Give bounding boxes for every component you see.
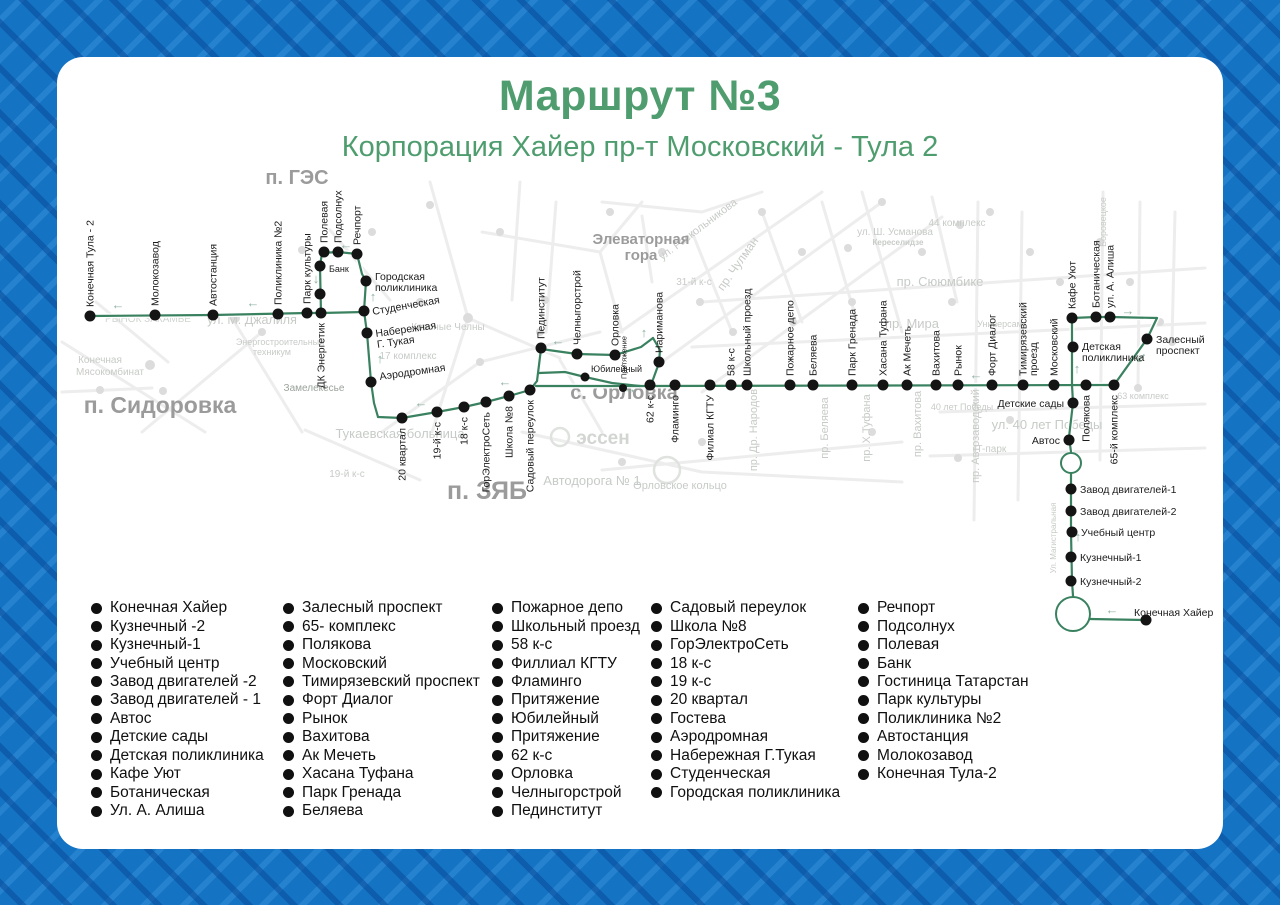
stop-bullet-icon — [283, 676, 294, 687]
legend-item: Аэродромная — [651, 728, 840, 746]
legend-item: Учебный центр — [91, 654, 264, 672]
stop-bullet-icon — [492, 713, 503, 724]
legend-item: Поликлиника №2 — [858, 710, 1029, 728]
legend-item-label: 58 к-с — [511, 636, 552, 654]
stop-bullet-icon — [858, 750, 869, 761]
legend-item-label: Кузнечный-1 — [110, 636, 201, 654]
legend-item: Полевая — [858, 636, 1029, 654]
legend-item-label: Парк Гренада — [302, 784, 401, 802]
legend-item: Фламинго — [492, 673, 640, 691]
stop-bullet-icon — [283, 640, 294, 651]
stop-bullet-icon — [91, 640, 102, 651]
stop-bullet-icon — [91, 713, 102, 724]
stop-bullet-icon — [492, 750, 503, 761]
legend-column: Садовый переулокШкола №8ГорЭлектроСеть18… — [651, 599, 840, 802]
legend-item: Завод двигателей - 1 — [91, 691, 264, 709]
legend-item-label: Школьный проезд — [511, 618, 640, 636]
stop-bullet-icon — [651, 713, 662, 724]
legend-item: Орловка — [492, 765, 640, 783]
stop-bullet-icon — [283, 658, 294, 669]
legend-item: Рынок — [283, 710, 480, 728]
legend-item-label: 20 квартал — [670, 691, 748, 709]
stop-bullet-icon — [91, 603, 102, 614]
stop-bullet-icon — [91, 732, 102, 743]
stop-bullet-icon — [91, 676, 102, 687]
legend-item-label: Детские сады — [110, 728, 208, 746]
stop-bullet-icon — [283, 787, 294, 798]
legend-item: Залесный проспект — [283, 599, 480, 617]
legend-item-label: Молокозавод — [877, 747, 973, 765]
stops-legend: Конечная ХайерКузнечный -2Кузнечный-1Уче… — [0, 0, 1280, 905]
legend-item-label: Вахитова — [302, 728, 370, 746]
legend-item-label: Рынок — [302, 710, 347, 728]
legend-item-label: Фламинго — [511, 673, 582, 691]
stop-bullet-icon — [492, 732, 503, 743]
legend-item: Садовый переулок — [651, 599, 840, 617]
legend-item-label: Ботаническая — [110, 784, 210, 802]
stop-bullet-icon — [858, 676, 869, 687]
legend-item: Автос — [91, 710, 264, 728]
legend-item: 19 к-с — [651, 673, 840, 691]
stop-bullet-icon — [858, 603, 869, 614]
legend-item: Банк — [858, 654, 1029, 672]
stop-bullet-icon — [492, 603, 503, 614]
stop-bullet-icon — [651, 732, 662, 743]
legend-item-label: Московский — [302, 655, 387, 673]
legend-item: Школьный проезд — [492, 617, 640, 635]
legend-item-label: Поликлиника №2 — [877, 710, 1001, 728]
legend-column: Залесный проспект65- комплексПоляковаМос… — [283, 599, 480, 820]
legend-item-label: Филлиал КГТУ — [511, 655, 617, 673]
legend-item-label: Притяжение — [511, 728, 600, 746]
legend-item-label: Парк культуры — [877, 691, 981, 709]
legend-item-label: Учебный центр — [110, 655, 220, 673]
legend-item-label: 65- комплекс — [302, 618, 396, 636]
legend-item: Беляева — [283, 802, 480, 820]
legend-item: Юбилейный — [492, 710, 640, 728]
legend-item: Челныгорстрой — [492, 783, 640, 801]
legend-item-label: Детская поликлиника — [110, 747, 264, 765]
stop-bullet-icon — [858, 621, 869, 632]
stop-bullet-icon — [651, 787, 662, 798]
legend-item: Конечная Тула-2 — [858, 765, 1029, 783]
legend-item-label: Кафе Уют — [110, 765, 181, 783]
legend-item-label: 18 к-с — [670, 655, 711, 673]
legend-item-label: Конечная Тула-2 — [877, 765, 997, 783]
legend-item: Автостанция — [858, 728, 1029, 746]
legend-item: ГорЭлектроСеть — [651, 636, 840, 654]
legend-item-label: Пединститут — [511, 802, 602, 820]
legend-item-label: Залесный проспект — [302, 599, 443, 617]
legend-item: Речпорт — [858, 599, 1029, 617]
stop-bullet-icon — [283, 732, 294, 743]
stop-bullet-icon — [283, 806, 294, 817]
stop-bullet-icon — [858, 640, 869, 651]
legend-item: Пожарное депо — [492, 599, 640, 617]
legend-item-label: Гостиница Татарстан — [877, 673, 1029, 691]
stop-bullet-icon — [651, 640, 662, 651]
stop-bullet-icon — [283, 713, 294, 724]
legend-item-label: Полякова — [302, 636, 371, 654]
legend-item-label: Городская поликлиника — [670, 784, 840, 802]
legend-item: Набережная Г.Тукая — [651, 747, 840, 765]
legend-item-label: Полевая — [877, 636, 939, 654]
legend-item: 20 квартал — [651, 691, 840, 709]
legend-item: Филлиал КГТУ — [492, 654, 640, 672]
legend-item: Подсолнух — [858, 617, 1029, 635]
stop-bullet-icon — [492, 769, 503, 780]
stop-bullet-icon — [858, 732, 869, 743]
legend-item-label: Банк — [877, 655, 911, 673]
legend-item-label: ГорЭлектроСеть — [670, 636, 789, 654]
legend-item: Форт Диалог — [283, 691, 480, 709]
legend-item: Парк Гренада — [283, 783, 480, 801]
stop-bullet-icon — [858, 769, 869, 780]
legend-item: Ул. А. Алиша — [91, 802, 264, 820]
legend-item-label: 62 к-с — [511, 747, 552, 765]
stop-bullet-icon — [91, 621, 102, 632]
legend-item: Студенческая — [651, 765, 840, 783]
stop-bullet-icon — [651, 658, 662, 669]
legend-item: Полякова — [283, 636, 480, 654]
legend-item-label: Ак Мечеть — [302, 747, 376, 765]
legend-item-label: Аэродромная — [670, 728, 768, 746]
legend-item-label: Тимирязевский проспект — [302, 673, 480, 691]
legend-item-label: Пожарное депо — [511, 599, 623, 617]
stop-bullet-icon — [651, 676, 662, 687]
poster-stage: Маршрут №3 Корпорация Хайер пр-т Московс… — [0, 0, 1280, 905]
stop-bullet-icon — [91, 806, 102, 817]
legend-item: 65- комплекс — [283, 617, 480, 635]
legend-item-label: Челныгорстрой — [511, 784, 621, 802]
legend-item-label: Садовый переулок — [670, 599, 806, 617]
legend-item-label: Притяжение — [511, 691, 600, 709]
legend-item-label: 19 к-с — [670, 673, 711, 691]
legend-item: Гостева — [651, 710, 840, 728]
stop-bullet-icon — [651, 621, 662, 632]
legend-item: Кафе Уют — [91, 765, 264, 783]
stop-bullet-icon — [91, 695, 102, 706]
legend-item: Тимирязевский проспект — [283, 673, 480, 691]
legend-item: Пединститут — [492, 802, 640, 820]
legend-item: 62 к-с — [492, 747, 640, 765]
legend-item: Вахитова — [283, 728, 480, 746]
legend-item: Конечная Хайер — [91, 599, 264, 617]
legend-item-label: Подсолнух — [877, 618, 955, 636]
legend-item-label: Набережная Г.Тукая — [670, 747, 816, 765]
legend-item-label: Ул. А. Алиша — [110, 802, 205, 820]
legend-item: Парк культуры — [858, 691, 1029, 709]
legend-item-label: Конечная Хайер — [110, 599, 227, 617]
legend-item-label: Орловка — [511, 765, 573, 783]
legend-item: Детская поликлиника — [91, 747, 264, 765]
legend-item: Кузнечный-1 — [91, 636, 264, 654]
stop-bullet-icon — [858, 695, 869, 706]
legend-item: Притяжение — [492, 728, 640, 746]
legend-item-label: Форт Диалог — [302, 691, 393, 709]
stop-bullet-icon — [492, 676, 503, 687]
stop-bullet-icon — [651, 750, 662, 761]
stop-bullet-icon — [858, 658, 869, 669]
legend-item-label: Юбилейный — [511, 710, 599, 728]
stop-bullet-icon — [91, 787, 102, 798]
legend-item: Ак Мечеть — [283, 747, 480, 765]
stop-bullet-icon — [283, 621, 294, 632]
stop-bullet-icon — [492, 658, 503, 669]
legend-item-label: Завод двигателей - 1 — [110, 691, 261, 709]
stop-bullet-icon — [91, 769, 102, 780]
legend-item-label: Школа №8 — [670, 618, 747, 636]
legend-item: Ботаническая — [91, 783, 264, 801]
legend-item-label: Студенческая — [670, 765, 771, 783]
legend-item-label: Автостанция — [877, 728, 969, 746]
stop-bullet-icon — [651, 603, 662, 614]
stop-bullet-icon — [283, 750, 294, 761]
stop-bullet-icon — [651, 769, 662, 780]
legend-item-label: Беляева — [302, 802, 363, 820]
stop-bullet-icon — [492, 806, 503, 817]
stop-bullet-icon — [91, 750, 102, 761]
stop-bullet-icon — [283, 695, 294, 706]
legend-item: Городская поликлиника — [651, 783, 840, 801]
stop-bullet-icon — [283, 769, 294, 780]
legend-item-label: Автос — [110, 710, 152, 728]
stop-bullet-icon — [283, 603, 294, 614]
legend-item-label: Речпорт — [877, 599, 935, 617]
legend-item-label: Гостева — [670, 710, 726, 728]
legend-column: Пожарное депоШкольный проезд58 к-сФиллиа… — [492, 599, 640, 820]
legend-item: Московский — [283, 654, 480, 672]
legend-item: Завод двигателей -2 — [91, 673, 264, 691]
legend-item: Школа №8 — [651, 617, 840, 635]
stop-bullet-icon — [492, 787, 503, 798]
legend-item: Детские сады — [91, 728, 264, 746]
legend-item: Молокозавод — [858, 747, 1029, 765]
stop-bullet-icon — [492, 640, 503, 651]
legend-column: Конечная ХайерКузнечный -2Кузнечный-1Уче… — [91, 599, 264, 820]
stop-bullet-icon — [492, 695, 503, 706]
legend-item-label: Кузнечный -2 — [110, 618, 205, 636]
legend-item-label: Завод двигателей -2 — [110, 673, 257, 691]
legend-item: 58 к-с — [492, 636, 640, 654]
legend-item: Притяжение — [492, 691, 640, 709]
stop-bullet-icon — [91, 658, 102, 669]
legend-column: РечпортПодсолнухПолеваяБанкГостиница Тат… — [858, 599, 1029, 783]
legend-item: 18 к-с — [651, 654, 840, 672]
stop-bullet-icon — [651, 695, 662, 706]
stop-bullet-icon — [492, 621, 503, 632]
legend-item: Хасана Туфана — [283, 765, 480, 783]
legend-item: Гостиница Татарстан — [858, 673, 1029, 691]
legend-item: Кузнечный -2 — [91, 617, 264, 635]
legend-item-label: Хасана Туфана — [302, 765, 414, 783]
stop-bullet-icon — [858, 713, 869, 724]
